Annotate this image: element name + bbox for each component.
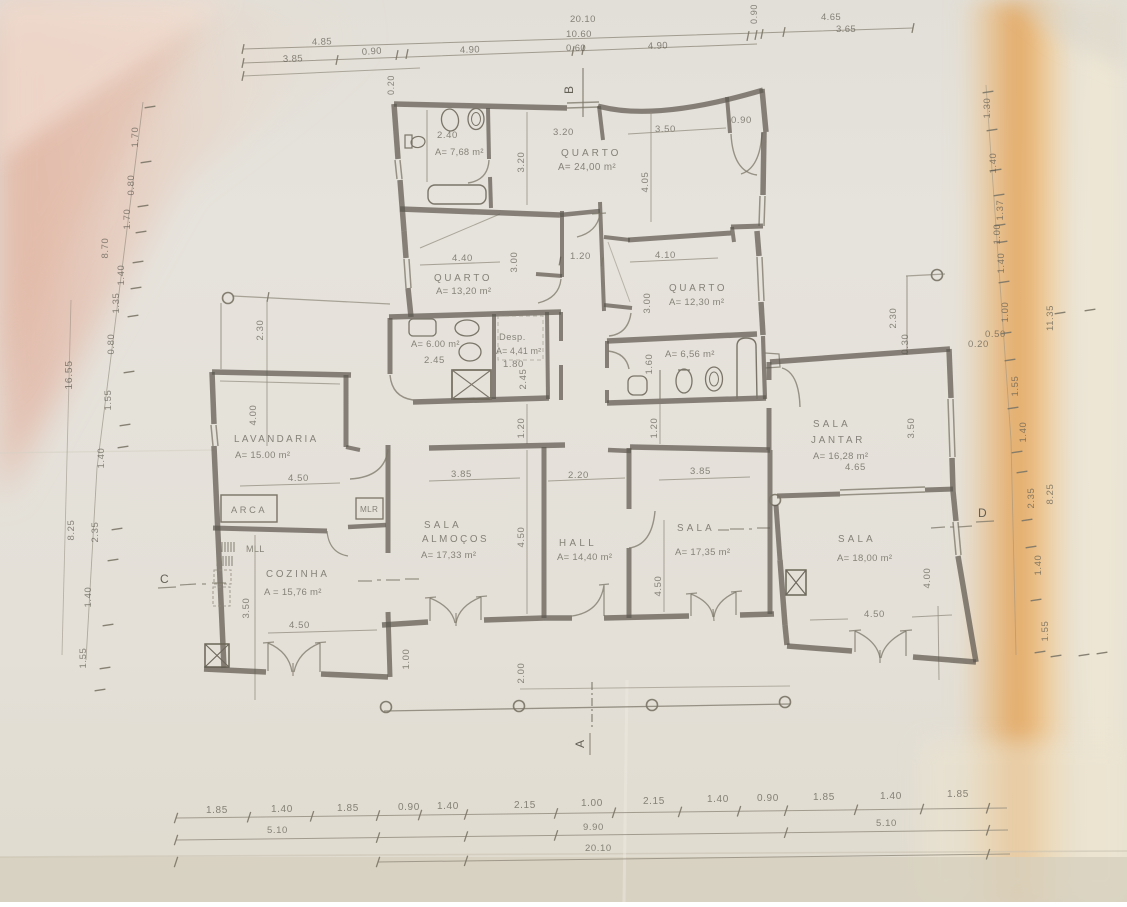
svg-text:1.20: 1.20 — [516, 418, 527, 439]
svg-text:0.80: 0.80 — [106, 334, 117, 355]
svg-text:1.40: 1.40 — [988, 153, 999, 174]
svg-text:0.90: 0.90 — [731, 115, 752, 126]
svg-text:1.60: 1.60 — [644, 354, 655, 375]
svg-text:A= 17,33 m²: A= 17,33 m² — [421, 550, 476, 561]
svg-text:1.40: 1.40 — [707, 794, 729, 805]
svg-text:1.20: 1.20 — [570, 251, 591, 262]
svg-text:D: D — [978, 506, 987, 520]
svg-text:1.70: 1.70 — [130, 127, 141, 148]
svg-text:SALA: SALA — [838, 534, 876, 545]
svg-text:2.40: 2.40 — [437, 130, 458, 141]
svg-text:4.00: 4.00 — [922, 568, 933, 589]
svg-text:3.20: 3.20 — [516, 152, 527, 173]
svg-text:A= 13,20 m²: A= 13,20 m² — [436, 286, 491, 297]
svg-text:1.40: 1.40 — [1033, 555, 1044, 576]
svg-text:10.60: 10.60 — [566, 29, 592, 40]
svg-text:QUARTO: QUARTO — [434, 273, 492, 284]
svg-text:8.25: 8.25 — [1045, 484, 1056, 505]
svg-text:5.10: 5.10 — [876, 818, 897, 829]
svg-text:ALMOÇOS: ALMOÇOS — [422, 534, 489, 545]
svg-text:5.10: 5.10 — [267, 825, 288, 836]
svg-text:3.50: 3.50 — [655, 124, 676, 135]
svg-text:1.00: 1.00 — [401, 649, 412, 670]
svg-text:2.15: 2.15 — [643, 796, 665, 807]
svg-text:1.70: 1.70 — [122, 209, 133, 230]
svg-text:2.35: 2.35 — [1026, 488, 1037, 509]
svg-text:A= 14,40 m²: A= 14,40 m² — [557, 552, 612, 563]
svg-text:1.55: 1.55 — [103, 390, 114, 411]
svg-text:0.90: 0.90 — [749, 4, 759, 24]
svg-text:4.00: 4.00 — [248, 405, 259, 426]
svg-text:0.80: 0.80 — [126, 175, 137, 196]
svg-text:1.00: 1.00 — [581, 798, 603, 809]
svg-text:4.50: 4.50 — [288, 473, 309, 484]
svg-text:3.20: 3.20 — [553, 127, 574, 138]
svg-text:4.50: 4.50 — [289, 620, 310, 631]
svg-text:1.40: 1.40 — [880, 791, 902, 802]
svg-text:A = 15,76 m²: A = 15,76 m² — [264, 587, 322, 598]
svg-text:1.40: 1.40 — [437, 801, 459, 812]
svg-text:3.85: 3.85 — [690, 466, 711, 477]
svg-text:SALA: SALA — [813, 419, 851, 430]
svg-text:A= 24,00 m²: A= 24,00 m² — [558, 162, 616, 173]
svg-text:1.55: 1.55 — [1040, 621, 1051, 642]
svg-text:1.40: 1.40 — [96, 448, 107, 469]
svg-text:1.85: 1.85 — [206, 805, 228, 816]
svg-text:1.40: 1.40 — [271, 804, 293, 815]
svg-text:1.55: 1.55 — [78, 648, 89, 669]
svg-text:A= 7,68 m²: A= 7,68 m² — [435, 147, 484, 157]
svg-text:4.10: 4.10 — [655, 250, 676, 261]
svg-text:2.45: 2.45 — [424, 355, 445, 366]
svg-text:3.00: 3.00 — [642, 293, 653, 314]
svg-text:4.50: 4.50 — [653, 576, 664, 597]
svg-text:COZINHA: COZINHA — [266, 569, 330, 580]
svg-text:A= 17,35 m²: A= 17,35 m² — [675, 547, 730, 558]
svg-text:3.65: 3.65 — [836, 24, 856, 35]
svg-text:0.90: 0.90 — [757, 793, 779, 804]
svg-text:2.00: 2.00 — [516, 663, 527, 684]
svg-text:QUARTO: QUARTO — [561, 148, 621, 159]
svg-text:0.50: 0.50 — [985, 329, 1006, 340]
svg-text:A= 4,41 m²: A= 4,41 m² — [496, 346, 541, 356]
svg-text:11.35: 11.35 — [1045, 305, 1056, 331]
svg-text:1.85: 1.85 — [813, 792, 835, 803]
svg-text:A: A — [573, 740, 587, 748]
svg-text:SALA: SALA — [677, 523, 715, 534]
svg-text:16.55: 16.55 — [63, 360, 75, 389]
svg-text:MLR: MLR — [360, 505, 378, 514]
svg-text:QUARTO: QUARTO — [669, 283, 727, 294]
svg-text:A= 15.00 m²: A= 15.00 m² — [235, 450, 290, 461]
svg-text:4.85: 4.85 — [312, 36, 332, 48]
svg-text:1.40: 1.40 — [1018, 422, 1029, 443]
svg-text:A= 16,28 m²: A= 16,28 m² — [813, 451, 868, 462]
svg-text:4.65: 4.65 — [821, 12, 841, 23]
svg-text:3.50: 3.50 — [241, 598, 252, 619]
svg-text:4.90: 4.90 — [460, 44, 480, 56]
svg-text:2.30: 2.30 — [255, 320, 266, 341]
svg-text:4.50: 4.50 — [516, 527, 527, 548]
svg-text:A= 6,56 m²: A= 6,56 m² — [665, 349, 715, 360]
svg-text:4.50: 4.50 — [864, 609, 885, 620]
svg-text:8.70: 8.70 — [100, 238, 111, 259]
svg-text:4.65: 4.65 — [845, 462, 866, 473]
svg-text:4.05: 4.05 — [640, 172, 651, 193]
svg-text:1.20: 1.20 — [649, 418, 660, 439]
svg-text:ARCA: ARCA — [231, 505, 267, 515]
svg-text:1.40: 1.40 — [116, 265, 127, 286]
svg-text:A= 6.00 m²: A= 6.00 m² — [411, 339, 460, 349]
svg-text:3.85: 3.85 — [283, 53, 303, 65]
svg-text:LAVANDARIA: LAVANDARIA — [234, 434, 319, 445]
svg-text:0.60: 0.60 — [566, 43, 586, 54]
svg-text:20.10: 20.10 — [570, 14, 596, 25]
svg-text:0.20: 0.20 — [968, 339, 989, 350]
svg-text:Desp.: Desp. — [499, 332, 526, 342]
svg-text:A= 18,00 m²: A= 18,00 m² — [837, 553, 892, 564]
svg-text:C: C — [160, 572, 169, 586]
svg-text:1.30: 1.30 — [982, 98, 993, 119]
svg-text:2.35: 2.35 — [90, 522, 101, 543]
svg-text:JANTAR: JANTAR — [811, 435, 865, 446]
svg-text:B: B — [562, 86, 576, 94]
svg-text:1.00: 1.00 — [1000, 302, 1011, 323]
svg-text:1.55: 1.55 — [1010, 376, 1021, 397]
svg-text:1.85: 1.85 — [337, 803, 359, 814]
svg-text:0.90: 0.90 — [361, 46, 382, 58]
svg-text:1.00: 1.00 — [992, 224, 1003, 245]
svg-text:3.50: 3.50 — [906, 418, 917, 439]
svg-text:2.45: 2.45 — [518, 369, 529, 390]
svg-text:2.30: 2.30 — [888, 308, 899, 329]
svg-text:3.85: 3.85 — [451, 469, 472, 480]
svg-text:4.90: 4.90 — [648, 40, 668, 52]
svg-text:2.15: 2.15 — [514, 800, 536, 811]
svg-text:A= 12,30 m²: A= 12,30 m² — [669, 297, 724, 308]
svg-text:1.37: 1.37 — [995, 200, 1006, 221]
svg-text:1.40: 1.40 — [996, 253, 1007, 274]
svg-text:1.85: 1.85 — [947, 789, 969, 800]
svg-text:1.80: 1.80 — [503, 359, 524, 370]
svg-text:4.40: 4.40 — [452, 253, 473, 264]
svg-text:1.40: 1.40 — [83, 587, 94, 608]
svg-text:SALA: SALA — [424, 520, 462, 531]
svg-text:1.35: 1.35 — [111, 293, 122, 314]
svg-text:8.25: 8.25 — [66, 520, 77, 541]
svg-text:0.90: 0.90 — [398, 802, 420, 813]
svg-text:0.20: 0.20 — [386, 75, 396, 95]
svg-text:3.00: 3.00 — [509, 252, 520, 273]
svg-text:HALL: HALL — [559, 538, 597, 549]
svg-text:9.90: 9.90 — [583, 822, 604, 833]
svg-text:20.10: 20.10 — [585, 843, 612, 854]
